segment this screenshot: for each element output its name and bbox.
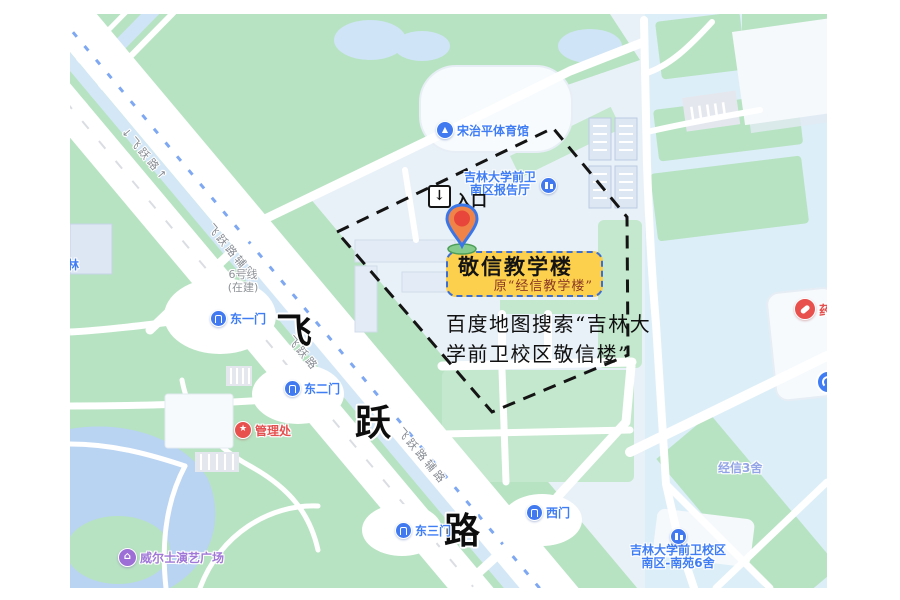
poi-pharmacy[interactable]: 药 xyxy=(794,298,827,320)
mountain-icon: ▲ xyxy=(436,121,454,139)
poi-gate-west[interactable]: 西门 xyxy=(526,504,570,521)
building-icon xyxy=(670,528,687,545)
search-hint-note: 百度地图搜索“吉林大 学前卫校区敬信楼” xyxy=(446,309,651,369)
gate-icon xyxy=(526,504,543,521)
poi-dorm3[interactable]: 经信3舍 xyxy=(718,459,762,476)
star-pin-icon: ★ xyxy=(234,421,252,439)
poi-gymnasium[interactable]: ▲ 宋治平体育馆 xyxy=(436,121,529,139)
page: 飞 跃 路 ↓飞跃路↑ 飞跃路辅路 飞跃路辅路 飞跃路 ▲ 宋治平体育馆 吉林大… xyxy=(0,0,900,600)
poi-dorm6[interactable]: 吉林大学前卫校区 南区-南苑6舍 xyxy=(608,544,748,570)
map-base-art xyxy=(70,14,827,588)
location-pin-icon[interactable] xyxy=(442,202,482,262)
poi-plaza[interactable]: ⌂ 威尔士演艺广场 xyxy=(118,548,224,567)
poi-gate-east3[interactable]: 东三门 xyxy=(395,522,451,539)
map-canvas[interactable]: 飞 跃 路 ↓飞跃路↑ 飞跃路辅路 飞跃路辅路 飞跃路 ▲ 宋治平体育馆 吉林大… xyxy=(70,14,827,588)
poi-gate-east2[interactable]: 东二门 xyxy=(284,380,340,397)
poi-partial-label[interactable]: 林 xyxy=(70,256,79,273)
road-name-char-2: 跃 xyxy=(355,406,391,442)
building-former-name: 原“经信教学楼” xyxy=(448,279,601,294)
pill-icon xyxy=(794,298,816,320)
building-icon xyxy=(540,177,557,194)
poi-admin-office[interactable]: ★ 管理处 xyxy=(234,421,291,439)
plaza-pin-icon: ⌂ xyxy=(118,548,137,567)
poi-gate-east1[interactable]: 东一门 xyxy=(210,310,266,327)
gate-icon xyxy=(284,380,301,397)
gate-icon xyxy=(395,522,412,539)
poi-metro-line6[interactable]: 6号线 (在建) xyxy=(213,268,273,294)
gate-icon xyxy=(210,310,227,327)
